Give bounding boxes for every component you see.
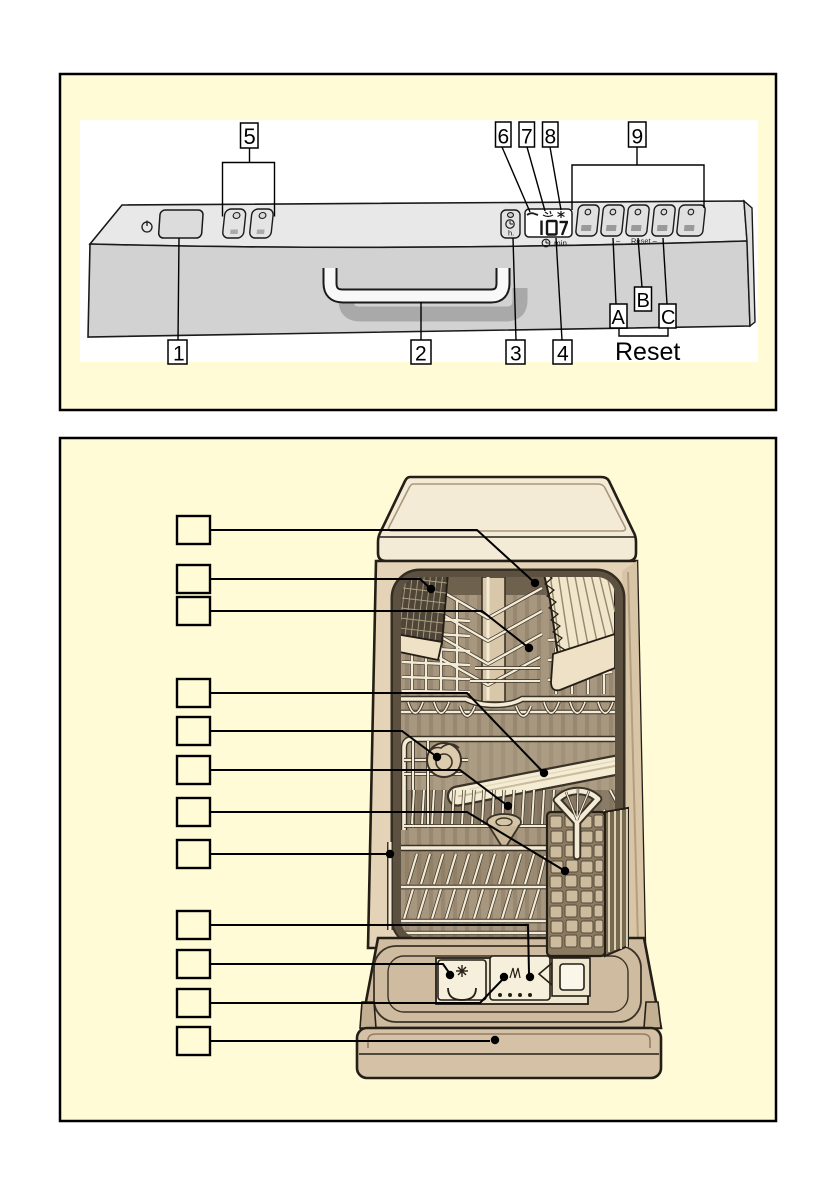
svg-text:Reset: Reset (615, 338, 680, 366)
svg-text:2: 2 (415, 343, 427, 366)
svg-text:8: 8 (545, 126, 557, 149)
svg-text:6: 6 (498, 126, 510, 149)
svg-text:3: 3 (510, 343, 522, 366)
svg-text:Reset –: Reset – (631, 237, 658, 246)
svg-text:h.: h. (508, 229, 514, 238)
svg-text:A: A (612, 307, 626, 329)
svg-text:4: 4 (557, 343, 569, 366)
svg-text:B: B (637, 290, 650, 312)
svg-text:7: 7 (521, 126, 533, 149)
svg-text:C: C (661, 307, 675, 329)
svg-text:5: 5 (244, 124, 256, 149)
svg-text:1: 1 (173, 343, 185, 366)
svg-text:9: 9 (632, 126, 644, 149)
